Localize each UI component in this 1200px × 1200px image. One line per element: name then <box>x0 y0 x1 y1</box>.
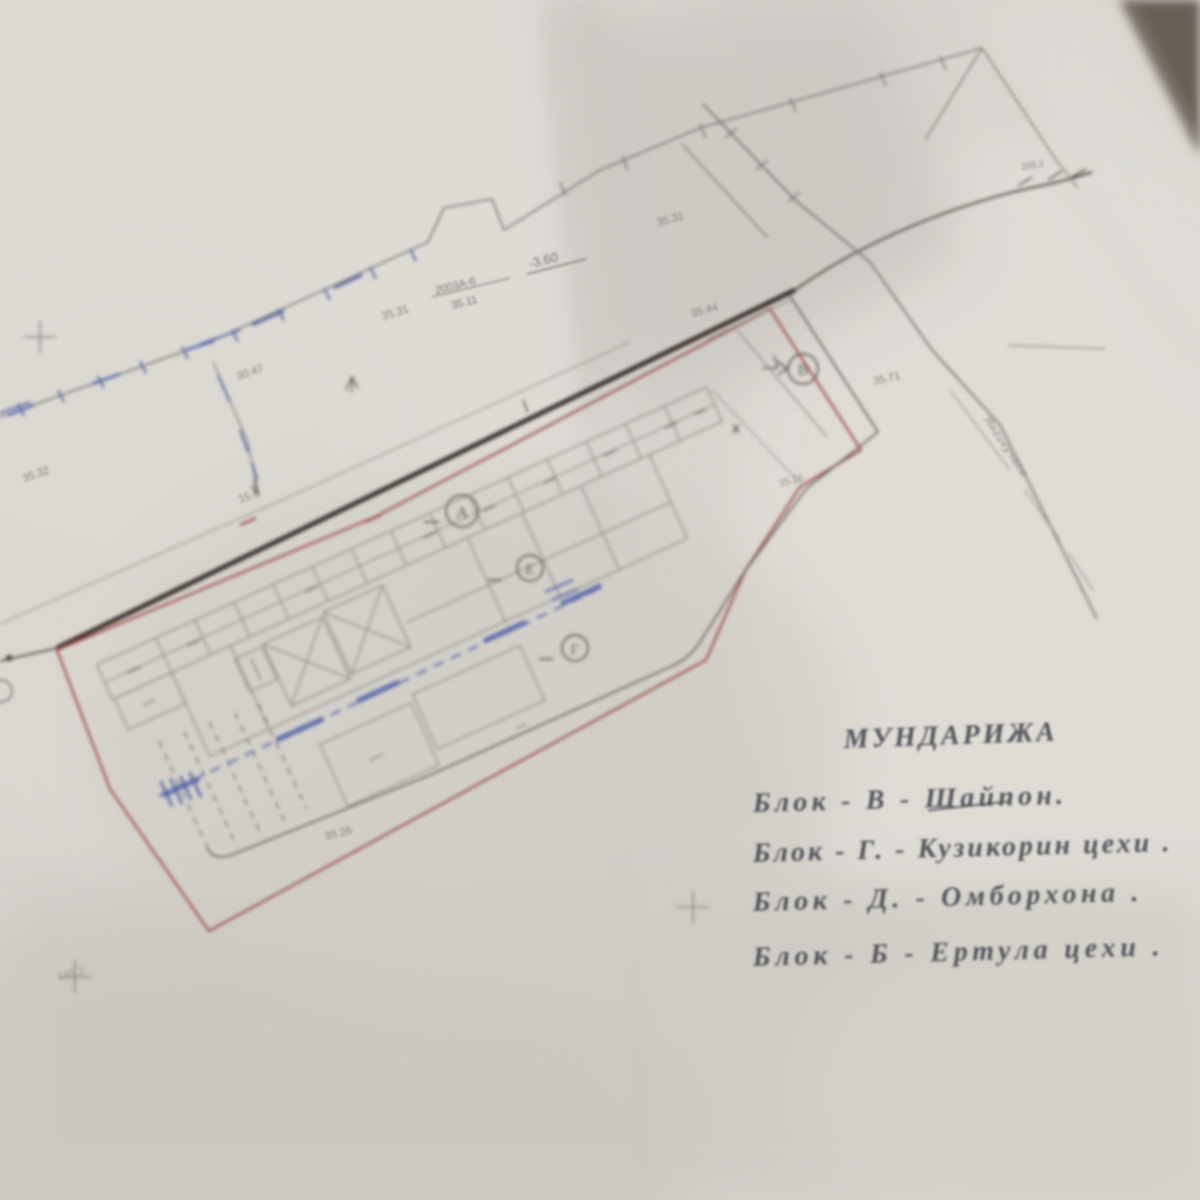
svg-text:Г: Г <box>571 642 580 658</box>
svg-text:Е: Е <box>525 562 534 578</box>
svg-text:В: В <box>798 362 809 379</box>
svg-text:А: А <box>456 503 469 522</box>
